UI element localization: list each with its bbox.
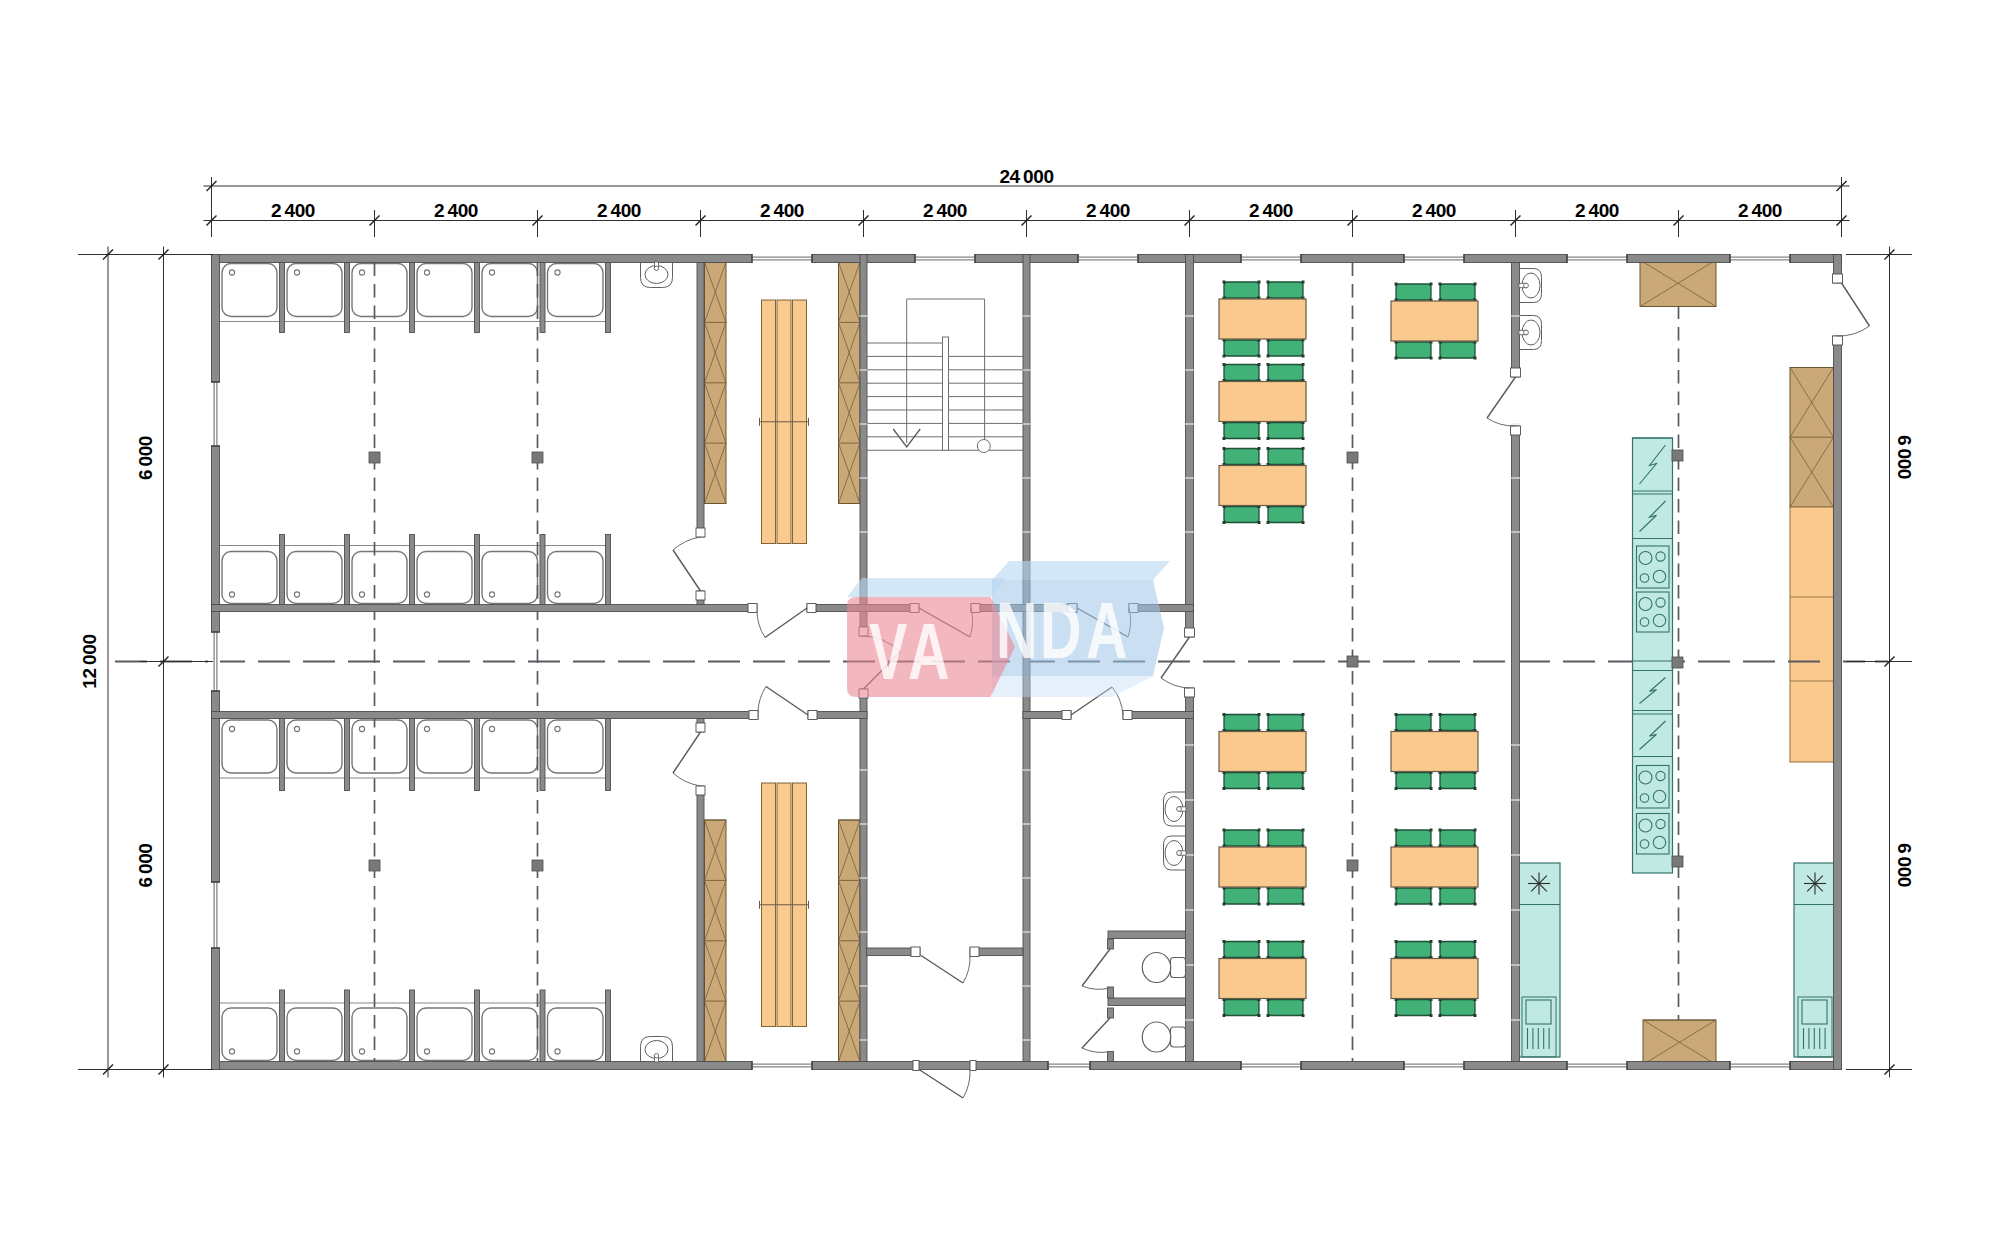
svg-text:2 400: 2 400: [597, 200, 641, 221]
svg-text:6 000: 6 000: [1894, 435, 1915, 479]
svg-text:2 400: 2 400: [923, 200, 967, 221]
svg-text:24 000: 24 000: [999, 166, 1053, 187]
svg-text:2 400: 2 400: [434, 200, 478, 221]
svg-text:2 400: 2 400: [271, 200, 315, 221]
svg-text:V: V: [869, 606, 907, 696]
svg-text:A: A: [1086, 586, 1128, 676]
svg-text:2 400: 2 400: [1575, 200, 1619, 221]
svg-text:D: D: [1040, 586, 1082, 676]
svg-text:12 000: 12 000: [79, 634, 100, 688]
svg-text:2 400: 2 400: [1249, 200, 1293, 221]
svg-text:A: A: [908, 606, 950, 696]
svg-text:2 400: 2 400: [1412, 200, 1456, 221]
svg-text:2 400: 2 400: [1086, 200, 1130, 221]
svg-text:6 000: 6 000: [135, 436, 156, 480]
svg-text:2 400: 2 400: [760, 200, 804, 221]
svg-text:6 000: 6 000: [135, 843, 156, 887]
svg-text:N: N: [996, 586, 1038, 676]
svg-text:6 000: 6 000: [1894, 843, 1915, 887]
svg-text:2 400: 2 400: [1738, 200, 1782, 221]
